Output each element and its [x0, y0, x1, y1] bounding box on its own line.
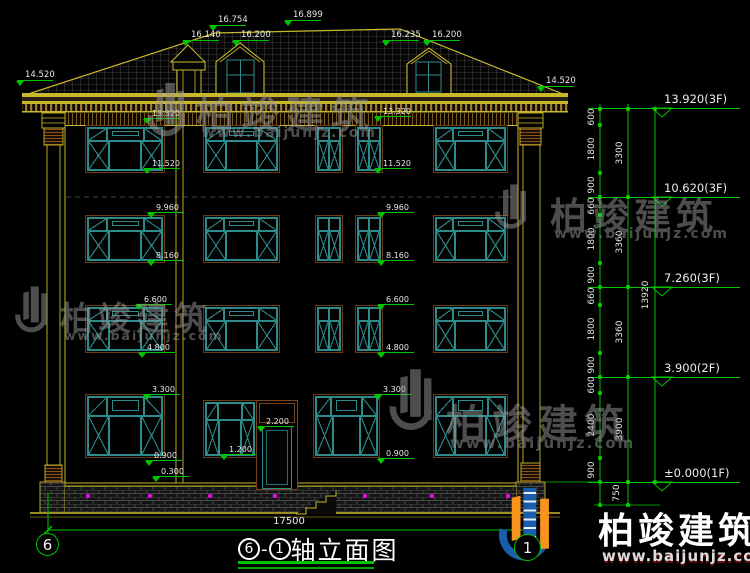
dim-segment-label: 3300	[615, 142, 625, 165]
floor-level-line	[588, 108, 740, 109]
floor-level-line	[588, 287, 740, 288]
window	[203, 215, 280, 263]
floor-level-line	[588, 377, 740, 378]
window	[85, 394, 165, 458]
roof-elevation-label: 16.235	[391, 31, 421, 40]
facade-elevation-label: 4.800	[386, 343, 409, 352]
roof-elevation-label: 16.899	[293, 11, 323, 20]
title-dash: -	[261, 539, 268, 560]
dim-segment-label: 1800	[587, 138, 597, 161]
overall-width-dimension: 17500	[273, 516, 305, 527]
watermark-url: www.baijunjz.com	[64, 328, 224, 343]
watermark-logo-icon	[494, 182, 532, 234]
window	[315, 305, 343, 353]
dim-segment-label: 660	[587, 287, 597, 304]
roof-elevation-label: 16.140	[191, 31, 221, 40]
pilaster-right	[516, 113, 545, 513]
facade-elevation-label: 3.300	[152, 385, 175, 394]
facade-elevation-label: 13.320	[383, 107, 411, 116]
window	[313, 394, 380, 458]
facade-elevation-label: 8.160	[386, 251, 409, 260]
window	[355, 305, 383, 353]
title-circled-6: 6	[238, 538, 260, 560]
facade-elevation-label: 11.520	[383, 159, 411, 168]
entry-door-surround	[256, 400, 298, 490]
dim-segment-label: 1800	[587, 318, 597, 341]
brand-url: www.baijunjz.com	[602, 547, 750, 565]
floor-level-label: 13.920(3F)	[664, 92, 727, 106]
watermark-logo-icon	[146, 80, 192, 142]
title-underline	[238, 561, 374, 564]
watermark-logo-icon	[14, 284, 54, 337]
window	[355, 215, 383, 263]
dim-segment-label: 900	[587, 356, 597, 373]
dim-segment-label: 900	[587, 461, 597, 478]
facade-elevation-label: 8.160	[156, 251, 179, 260]
roof-elevation-label: 16.754	[218, 16, 248, 25]
facade-elevation-label: 4.800	[147, 343, 170, 352]
dim-total-label: 13920	[641, 281, 651, 310]
facade-elevation-label: 11.520	[152, 159, 180, 168]
roof-elevation-label: 16.200	[432, 31, 462, 40]
facade-elevation-label: 9.960	[386, 203, 409, 212]
window	[85, 215, 165, 263]
floor-level-label: 7.260(3F)	[664, 271, 720, 285]
dim-segment-label: 900	[587, 266, 597, 283]
dim-segment-label: 600	[587, 108, 597, 125]
axis-bubble-1: 1	[514, 534, 541, 561]
roof-elevation-label: 14.520	[25, 71, 55, 80]
watermark-url: www.baijunjz.com	[450, 434, 635, 452]
title-circled-1: 1	[269, 538, 291, 560]
facade-elevation-label: 1.200	[229, 445, 252, 454]
watermark-logo-icon	[388, 366, 440, 437]
watermark-url: www.baijunjz.com	[554, 226, 729, 242]
roof-elevation-label: 14.520	[546, 77, 576, 86]
facade-elevation-label: 0.300	[161, 467, 184, 476]
facade-elevation-label: 6.600	[386, 295, 409, 304]
floor-level-line	[588, 482, 740, 483]
floor-level-label: 3.900(2F)	[664, 361, 720, 375]
roof-elevation-label: 16.200	[241, 31, 271, 40]
floor-level-label: ±0.000(1F)	[664, 466, 729, 480]
axis-bubble-6: 6	[36, 533, 59, 556]
window	[315, 215, 343, 263]
facade-elevation-label: 2.200	[266, 417, 289, 426]
window	[433, 125, 508, 173]
facade-elevation-label: 0.900	[154, 451, 177, 460]
cad-elevation-canvas: 16.75416.89916.14016.20016.23516.20014.5…	[0, 0, 750, 573]
entry-door	[262, 426, 292, 489]
facade-elevation-label: 0.900	[386, 449, 409, 458]
title-underline-thin	[238, 567, 374, 569]
dim-segment-label: 750	[612, 484, 622, 501]
dim-segment-label: 3360	[615, 321, 625, 344]
watermark-url: www.baijunjz.com	[202, 125, 377, 141]
window	[433, 305, 508, 353]
facade-elevation-label: 9.960	[156, 203, 179, 212]
